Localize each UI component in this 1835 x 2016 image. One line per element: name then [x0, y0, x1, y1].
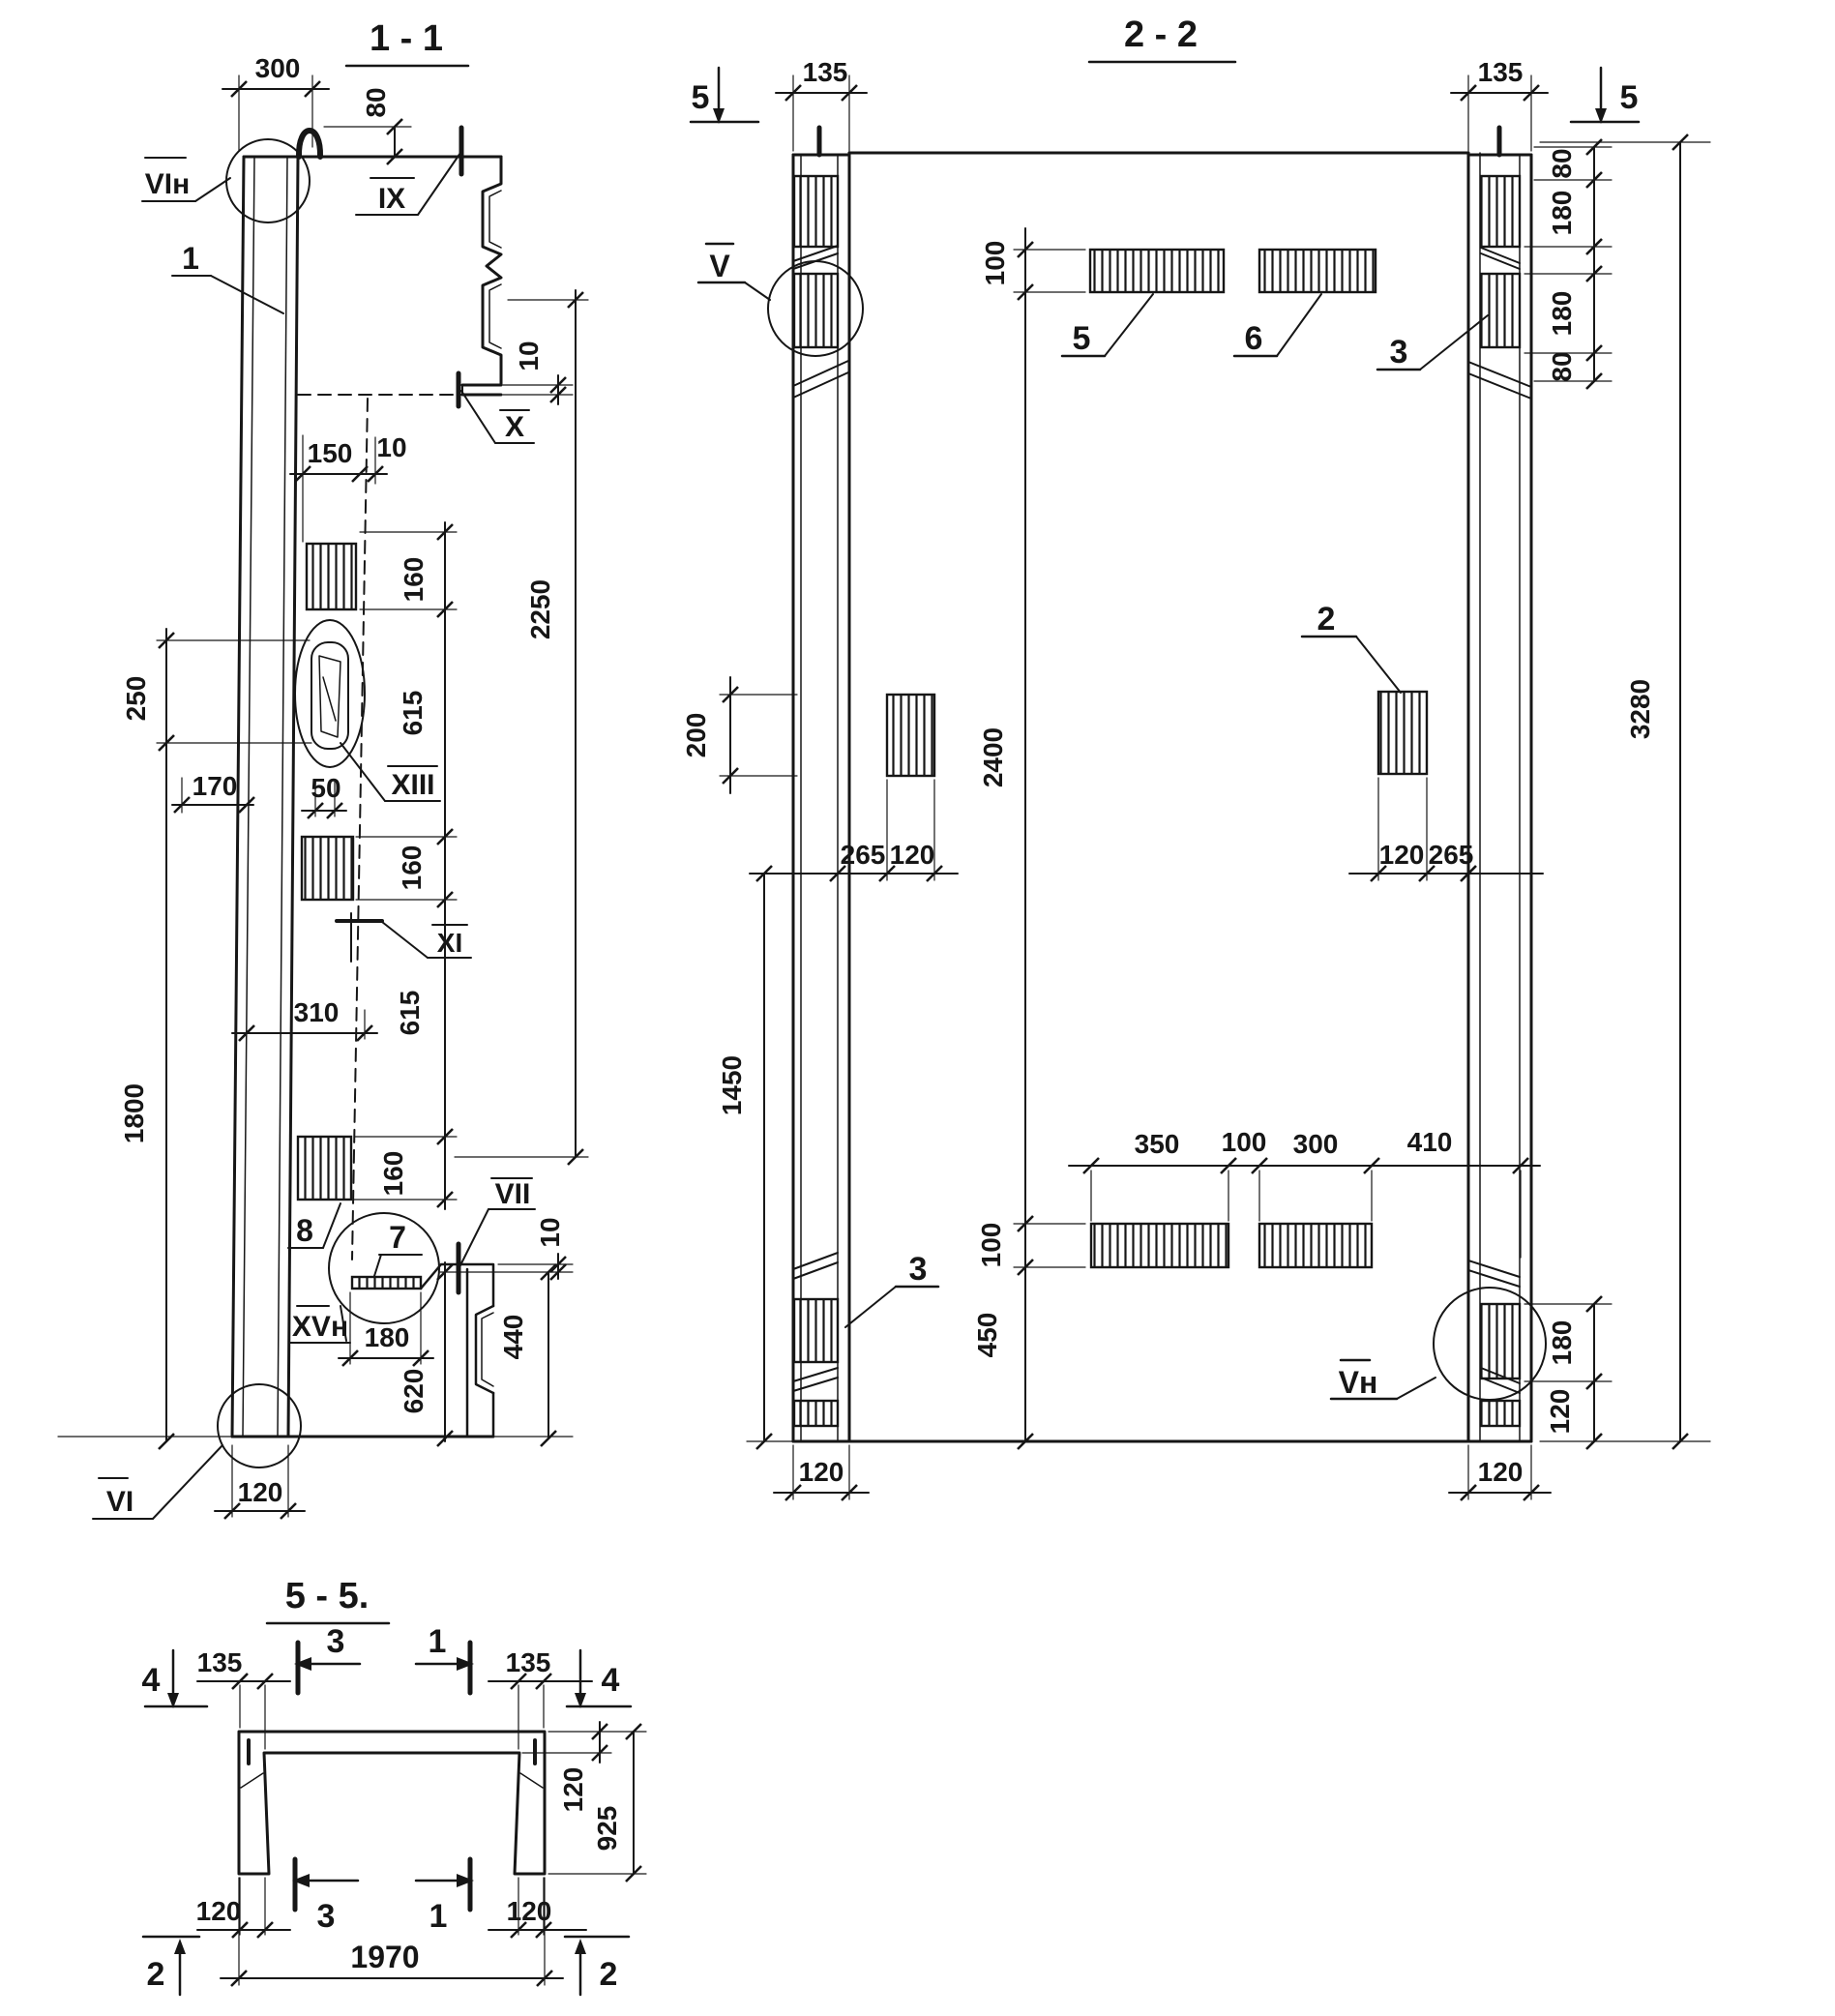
label-v: V: [709, 249, 730, 283]
label-ix: IX: [378, 183, 405, 215]
dim-200: 200: [681, 713, 711, 758]
label-7: 7: [389, 1220, 406, 1255]
callout-xvn: XVн: [290, 1306, 350, 1343]
dim-180-top-1: 180: [1547, 191, 1577, 236]
cut-2-right-label: 2: [600, 1956, 618, 1993]
section-1-1: 1 - 1: [58, 18, 588, 1519]
cut-2-left-label: 2: [147, 1956, 165, 1993]
label-xi: XI: [437, 928, 462, 958]
dim-180-top-2: 180: [1547, 291, 1577, 337]
dim-135-right: 135: [1478, 57, 1524, 87]
cut-1-top-label: 1: [429, 1623, 447, 1660]
channel-outline-5-5: [239, 1732, 545, 1874]
cut-4-right-label: 4: [602, 1662, 620, 1699]
dim-615-2: 615: [395, 991, 425, 1036]
label-8: 8: [296, 1213, 313, 1248]
dim-120-web: 120: [558, 1767, 588, 1813]
dim-50: 50: [311, 773, 340, 803]
dim-310: 310: [294, 997, 340, 1027]
cut-marker-1-bottom: 1: [416, 1859, 474, 1935]
lifting-loop: [299, 131, 320, 157]
cut-marker-4-right: 4: [567, 1650, 631, 1708]
callout-2: 2: [1302, 601, 1401, 693]
cut-marker-5-right: 5: [1571, 68, 1639, 124]
dim-300-bar: 300: [1293, 1129, 1339, 1159]
dim-120-bottom-left-55: 120: [196, 1896, 242, 1926]
callout-5: 5: [1062, 294, 1153, 357]
dim-120-bottom-left-col: 120: [799, 1457, 844, 1487]
dim-3280: 3280: [1625, 679, 1655, 739]
dim-615-1: 615: [398, 691, 428, 736]
label-1: 1: [182, 241, 199, 276]
dims-1-1: 300 80 10 150 10 160 615 160 615 160 620: [58, 53, 588, 1519]
cut-marker-2-left: 2: [143, 1937, 199, 1995]
cut-5-right-label: 5: [1620, 79, 1639, 116]
callout-8: 8: [288, 1203, 340, 1248]
cut-marker-3-top: 3: [294, 1623, 360, 1693]
dim-80-top-1: 80: [1547, 148, 1577, 178]
cut-4-left-label: 4: [142, 1662, 161, 1699]
dim-450: 450: [972, 1313, 1002, 1358]
label-vn: Vн: [1339, 1365, 1378, 1400]
cut-marker-3-bottom: 3: [292, 1859, 358, 1935]
dim-120-bottom-right-col: 120: [1478, 1457, 1524, 1487]
section-2-2-title: 2 - 2: [1124, 15, 1198, 55]
callout-vi: VI: [93, 1445, 222, 1519]
dim-1970: 1970: [350, 1940, 419, 1974]
label-xiii: XIII: [391, 769, 434, 801]
dim-925: 925: [592, 1806, 622, 1852]
dim-170: 170: [192, 771, 238, 801]
dim-160-3: 160: [378, 1151, 408, 1197]
label-5: 5: [1073, 320, 1091, 357]
dim-2250: 2250: [525, 579, 555, 639]
dim-265-right: 265: [1429, 840, 1474, 870]
dim-265-left: 265: [841, 840, 886, 870]
dim-80: 80: [361, 87, 391, 117]
dim-10-mid: 10: [376, 432, 406, 462]
dim-180-bottom: 180: [365, 1322, 410, 1352]
callout-7: 7: [374, 1220, 422, 1276]
callout-vii: VII: [460, 1178, 535, 1265]
cut-marker-1-top: 1: [416, 1623, 474, 1693]
dim-135-right-55: 135: [506, 1647, 551, 1677]
dim-250: 250: [121, 676, 151, 722]
section-5-5: 5 - 5. 4 4 3 1 3: [142, 1576, 646, 1995]
callout-x: X: [461, 391, 534, 443]
callout-v: V: [698, 244, 770, 300]
dim-100-bottom: 100: [976, 1223, 1006, 1268]
dim-1800: 1800: [119, 1083, 149, 1143]
callout-xi: XI: [382, 922, 471, 958]
dim-120-bottom-right-stack: 120: [1545, 1389, 1575, 1435]
label-xv-n: XVн: [292, 1311, 348, 1343]
cut-3-top-label: 3: [327, 1623, 345, 1660]
label-6: 6: [1245, 320, 1263, 357]
dim-180-bottom-right: 180: [1547, 1320, 1577, 1366]
cut-5-left-label: 5: [692, 79, 710, 116]
dim-120-bottom-left: 120: [238, 1477, 283, 1507]
dim-10-top: 10: [514, 341, 544, 371]
section-2-2: 2 - 2 5 5: [681, 15, 1710, 1500]
dim-100-top: 100: [980, 241, 1010, 286]
label-x: X: [505, 411, 524, 443]
callout-1: 1: [172, 241, 283, 313]
section-1-1-title: 1 - 1: [370, 18, 443, 59]
label-vi-n-top: VIн: [145, 168, 190, 200]
dim-100-gap: 100: [1222, 1127, 1267, 1157]
drawing-canvas: 1 - 1: [0, 0, 1835, 2016]
label-3-bottom: 3: [909, 1251, 928, 1288]
dim-150: 150: [308, 438, 353, 468]
dim-160-2: 160: [397, 845, 427, 891]
drawing-sheet: 1 - 1: [0, 0, 1835, 2016]
callout-vn: Vн: [1331, 1360, 1435, 1400]
cut-1-bottom-label: 1: [429, 1898, 448, 1935]
label-2: 2: [1317, 601, 1336, 637]
callout-ix: IX: [356, 153, 460, 215]
cut-marker-5-left: 5: [691, 68, 758, 124]
callout-xiii: XIII: [340, 743, 440, 801]
label-vii: VII: [495, 1178, 531, 1210]
column-outline-1-1: [232, 131, 501, 1437]
dim-120-right-mid: 120: [1379, 840, 1425, 870]
dim-300: 300: [255, 53, 301, 83]
slot-detail: [295, 620, 365, 767]
label-3-top: 3: [1390, 334, 1408, 371]
dim-350: 350: [1135, 1129, 1180, 1159]
dim-135-left: 135: [803, 57, 848, 87]
callout-vin: VIн: [142, 158, 230, 201]
dim-160-1: 160: [399, 557, 429, 603]
callout-6: 6: [1234, 294, 1321, 357]
dim-410: 410: [1407, 1127, 1453, 1157]
label-vi-bottom: VI: [106, 1486, 133, 1518]
dim-10-bottom: 10: [535, 1217, 565, 1247]
anchor-bars-2-2: [887, 250, 1427, 1267]
callout-3-bottom: 3: [845, 1251, 938, 1327]
dim-135-left-55: 135: [197, 1647, 243, 1677]
dim-440: 440: [498, 1315, 528, 1360]
dim-2400: 2400: [978, 727, 1008, 787]
dim-620: 620: [399, 1369, 429, 1414]
cut-3-bottom-label: 3: [317, 1898, 336, 1935]
section-5-5-title: 5 - 5.: [285, 1576, 370, 1616]
dim-80-top-2: 80: [1547, 351, 1577, 381]
dim-120-left-mid: 120: [890, 840, 935, 870]
cut-marker-2-right: 2: [565, 1937, 629, 1995]
detail-circle-7: [329, 1213, 439, 1323]
dim-1450: 1450: [717, 1055, 747, 1115]
